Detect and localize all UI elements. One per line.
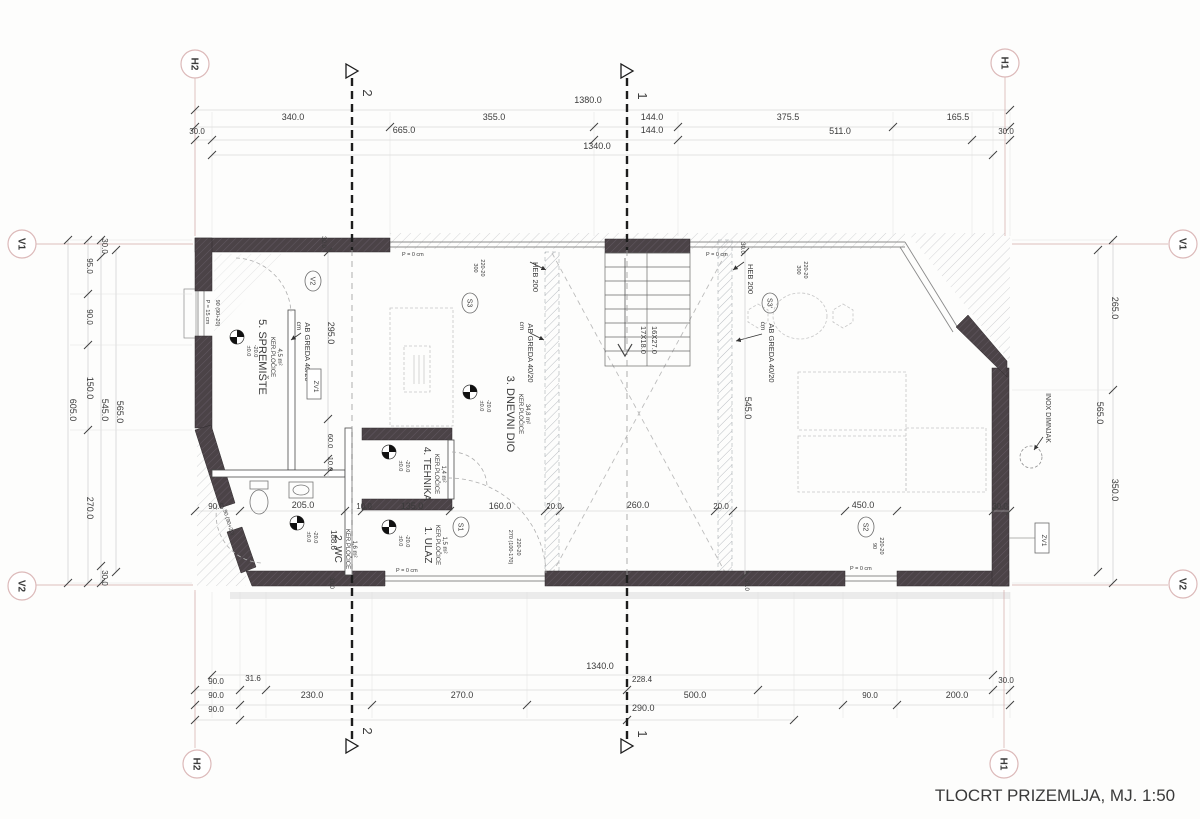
dim-label: 1340.0 <box>586 661 614 671</box>
annotation-arrows <box>291 262 1043 538</box>
dim-label: 350.0 <box>1110 479 1120 502</box>
left-wall-lower <box>195 336 212 428</box>
axis-marker-label: V2 <box>1177 578 1188 591</box>
dim-label: 565.0 <box>115 401 125 424</box>
level-marker-quadrant <box>382 452 389 459</box>
dim-label: 545.0 <box>100 399 110 422</box>
level-value: -20.0 <box>312 531 318 544</box>
dim-label: 150.0 <box>85 377 95 400</box>
dim-label: 4,5 m² <box>276 348 282 365</box>
axis-marker-label: V1 <box>16 238 27 251</box>
level-marker-quadrant <box>389 445 396 452</box>
dim-label: 90 (90+20) <box>214 300 220 327</box>
dim-label: 30.0 <box>998 676 1014 685</box>
dim-label: 265.0 <box>1110 297 1120 320</box>
floor-plan-page: 1380.0340.0355.0144.0375.5165.530.0665.0… <box>0 0 1200 819</box>
dim-label: 375.5 <box>777 112 800 122</box>
dim-label: 90.0 <box>208 705 224 714</box>
dim-label: 355.0 <box>483 112 506 122</box>
dim-label: P = 0 cm <box>706 252 728 258</box>
dim-label: 160.0 <box>489 501 512 511</box>
dim-label: 295.0 <box>326 322 336 345</box>
section-label-bottom: 1 <box>635 730 650 737</box>
dim-label: 144.0 <box>641 112 664 122</box>
zv-box-label: ZV1 <box>312 381 319 393</box>
level-marker-quadrant <box>470 385 477 392</box>
dim-label: AB GREDA 40/20 <box>526 323 535 382</box>
component-bubble-label: S3' <box>766 298 773 308</box>
tehnika-door-swing <box>452 452 487 487</box>
level-value: -20.0 <box>404 535 410 548</box>
drawing-title: TLOCRT PRIZEMLJA, MJ. 1:50 <box>935 786 1175 805</box>
dim-label: 30.0 <box>189 127 205 136</box>
door-swings <box>216 258 546 576</box>
level-value: -20.0 <box>252 345 258 358</box>
dim-label: 90.0 <box>85 309 94 325</box>
void-projection <box>552 253 726 574</box>
level-marker-quadrant <box>463 392 470 399</box>
section-arrow-top <box>621 64 633 78</box>
dim-label: 228.4 <box>632 675 653 684</box>
stair-top-wall <box>605 239 690 253</box>
dim-label: 1,4 m² <box>440 465 446 482</box>
dining-table <box>773 293 827 339</box>
dim-label: 205.0 <box>292 500 315 510</box>
dim-label: 1,5 m² <box>441 536 447 553</box>
dim-label: 605.0 <box>68 399 78 422</box>
dim-label: KER.PLOČICE <box>269 337 276 377</box>
dim-label: 30.0 <box>743 579 749 591</box>
dim-label: 2. WC <box>332 535 343 563</box>
spremiste-partition <box>288 310 295 470</box>
sofa-section-1 <box>798 372 906 430</box>
level-marker-quadrant <box>290 523 297 530</box>
zv-box-label: ZV1 <box>1040 535 1047 547</box>
dim-label: 500.0 <box>684 690 707 700</box>
level-value: -20.0 <box>485 400 491 413</box>
dim-label: cm <box>518 322 525 331</box>
axis-marker-label: H2 <box>191 758 202 771</box>
furniture <box>390 293 1042 492</box>
axis-marker-label: V2 <box>16 580 27 593</box>
toilet-tank <box>250 481 268 489</box>
dim-label: 165.5 <box>947 112 970 122</box>
beam-band-right <box>718 240 732 575</box>
level-value: ±0.0 <box>397 461 403 472</box>
dim-label: 90.0 <box>208 677 224 686</box>
dim-label: 95.0 <box>85 258 94 274</box>
dim-label: 220-20 <box>878 537 884 554</box>
dim-label: 665.0 <box>393 125 416 135</box>
wc-partition-top <box>212 470 345 477</box>
spremiste-hatch <box>214 254 288 332</box>
dim-label: HEB 200 <box>746 264 755 294</box>
tehnika-partition-right <box>448 440 454 499</box>
section-arrow-top <box>346 64 358 78</box>
level-marker-quadrant <box>389 520 396 527</box>
bottom-wall-middle <box>545 571 845 586</box>
exterior-paving-strip <box>230 592 1010 599</box>
left-wall-upper <box>195 238 212 291</box>
dim-label: 30.0 <box>739 242 745 254</box>
tehnika-wall-top <box>362 428 452 440</box>
dim-label: HEB 200 <box>531 262 540 292</box>
dim-label: 3. DNEVNI DIO <box>504 376 516 453</box>
bottom-wall-left <box>246 571 385 586</box>
dim-label: 17X18.0 <box>639 326 648 354</box>
sofa-section-3 <box>906 428 986 492</box>
dim-label: 200.0 <box>946 690 969 700</box>
dim-label: KER.PLOČICE <box>517 394 524 434</box>
dim-label: AB GREDA 40/20 <box>767 323 776 382</box>
dim-label: 290.0 <box>632 703 655 713</box>
sofa-section-2 <box>798 436 906 492</box>
dim-label: 30.0 <box>328 577 334 589</box>
dim-label: 90.0 <box>208 691 224 700</box>
dim-label: 230.0 <box>301 690 324 700</box>
floor-plan-drawing: 1380.0340.0355.0144.0375.5165.530.0665.0… <box>0 0 1200 819</box>
dim-label: KER.PLOČICE <box>434 525 441 565</box>
chimney-circle <box>1020 446 1042 468</box>
component-bubble-label: S2 <box>862 523 869 532</box>
dim-label: 34,8 m² <box>524 404 530 424</box>
dim-label: 1. ULAZ <box>422 527 433 564</box>
axis-marker-label: H2 <box>189 58 200 71</box>
dim-label: 90.0 <box>862 691 878 700</box>
dim-label: 220-20 <box>802 261 808 278</box>
dim-label: 30.0 <box>992 502 1008 511</box>
top-right-corner-hatch <box>908 233 1010 362</box>
dim-label: 340.0 <box>282 112 305 122</box>
dim-label: 1380.0 <box>574 95 602 105</box>
component-bubble-label: V2 <box>309 277 316 286</box>
section-label-bottom: 2 <box>360 727 375 734</box>
dim-label: 135.0 <box>401 501 424 511</box>
dim-label: 20.0 <box>713 502 729 511</box>
dim-label: 30.0 <box>998 127 1014 136</box>
level-marker-quadrant <box>230 337 237 344</box>
right-wall <box>992 368 1009 586</box>
dim-label: 30.0 <box>320 236 326 248</box>
dim-label: 60.0 <box>326 434 335 449</box>
level-value: ±0.0 <box>305 532 311 543</box>
glazing <box>184 242 958 581</box>
dim-label: cm <box>295 322 302 331</box>
dim-label: 545.0 <box>743 397 753 420</box>
kitchen-counter <box>390 308 453 426</box>
level-marker-quadrant <box>382 527 389 534</box>
component-bubble-label: S1 <box>457 523 464 532</box>
section-label-top: 1 <box>635 92 650 99</box>
dim-label: 31.6 <box>245 674 261 683</box>
dim-label: 511.0 <box>829 126 851 136</box>
level-value: -20.0 <box>404 460 410 473</box>
dim-label: 10.0 <box>356 502 372 511</box>
dim-label: P = 0 cm <box>850 566 872 572</box>
dining-chair-right <box>833 304 853 328</box>
dim-label: 144.0 <box>641 125 664 135</box>
dim-label: 450.0 <box>852 500 875 510</box>
dimension-ticks <box>64 106 1117 724</box>
beam-bands <box>545 240 732 575</box>
level-value: ±0.0 <box>397 536 403 547</box>
dim-label: KER.PLOČICE <box>433 454 440 494</box>
axis-marker-label: H1 <box>998 758 1009 771</box>
section-label-top: 2 <box>360 89 375 96</box>
dim-label: KER.PLOČICE <box>344 529 351 569</box>
axis-marker-label: V1 <box>1177 238 1188 251</box>
component-bubble-label: S3 <box>466 299 473 308</box>
dim-label: 30.0 <box>100 570 109 586</box>
dim-label: 300 <box>472 263 478 272</box>
dim-label: 220-20 <box>515 538 521 555</box>
dim-label: 90 <box>871 543 877 549</box>
dim-label: 300 <box>795 265 801 274</box>
top-wall <box>195 238 390 252</box>
level-value: ±0.0 <box>245 346 251 357</box>
dim-label: 20.0 <box>546 502 562 511</box>
section-arrow-bottom <box>346 739 358 753</box>
kitchen-appliance <box>404 346 430 392</box>
dim-label: 260.0 <box>627 500 650 510</box>
inox-dimnjak-arrow <box>1034 437 1043 450</box>
level-marker-quadrant <box>297 516 304 523</box>
dim-label: INOX DIMNJAK <box>1044 393 1051 443</box>
dim-label: 565.0 <box>1095 402 1105 425</box>
dim-label: P = 15 cm <box>204 300 210 325</box>
level-marker-quadrant <box>237 330 244 337</box>
toilet-icon <box>250 490 268 514</box>
left-window-sill <box>184 289 196 338</box>
dim-label: 220-20 <box>479 259 485 276</box>
dim-label: 270.0 <box>85 497 95 520</box>
dim-label: 1340.0 <box>583 141 611 151</box>
dim-label: 10.0 <box>326 457 335 472</box>
level-value: ±0.0 <box>478 401 484 412</box>
dim-label: 270.0 <box>451 690 474 700</box>
dim-label: 270 (100-170) <box>507 530 513 565</box>
dim-label: 4. TEHNIKA <box>421 447 432 502</box>
beam-band-left <box>545 252 559 575</box>
dim-label: P = 0 cm <box>402 252 424 258</box>
dim-label: 16X27.0 <box>650 326 659 354</box>
axis-marker-label: H1 <box>999 57 1010 70</box>
dim-label: cm <box>759 322 766 331</box>
dim-label: P = 0 cm <box>396 568 418 574</box>
section-arrow-bottom <box>621 739 633 753</box>
dim-label: 30.0 <box>100 238 109 254</box>
